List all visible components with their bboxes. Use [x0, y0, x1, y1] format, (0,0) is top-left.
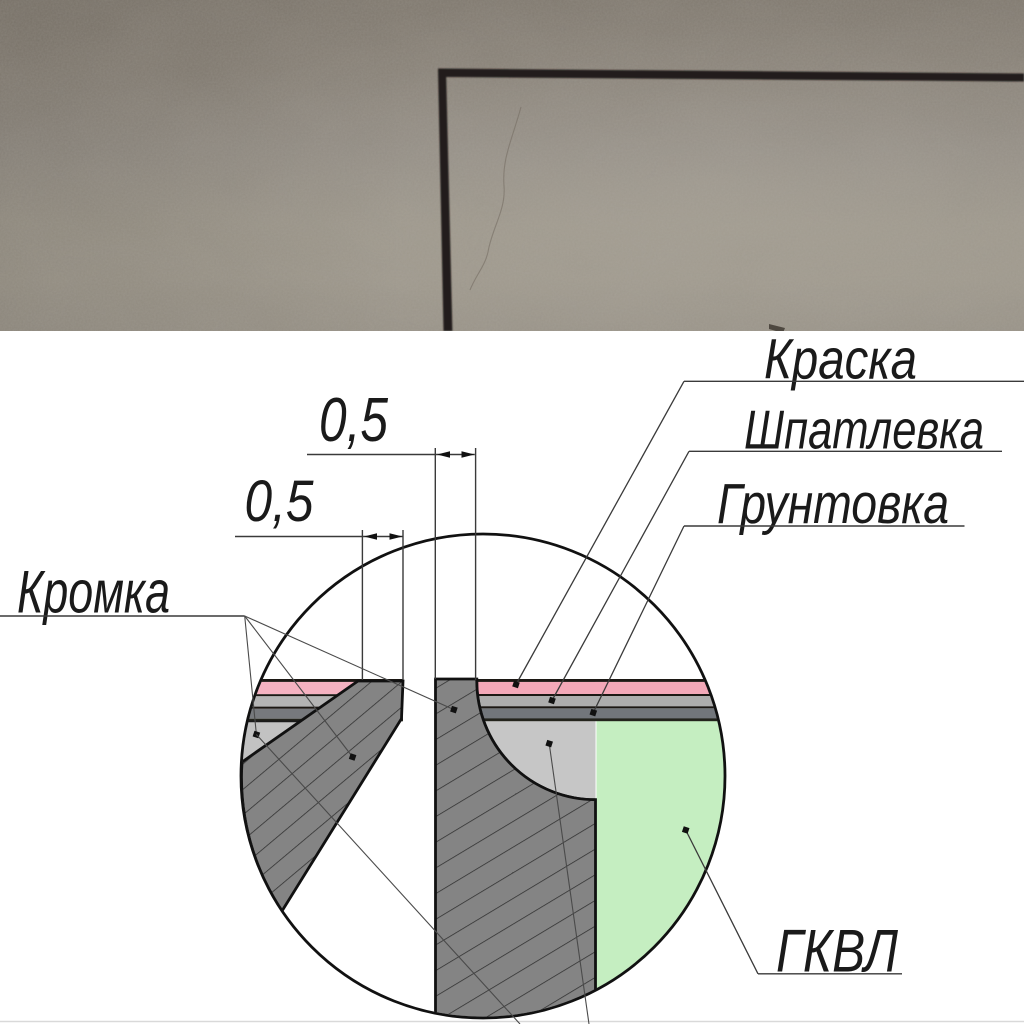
svg-text:0,5: 0,5 — [245, 469, 315, 534]
svg-text:0,5: 0,5 — [319, 386, 388, 455]
